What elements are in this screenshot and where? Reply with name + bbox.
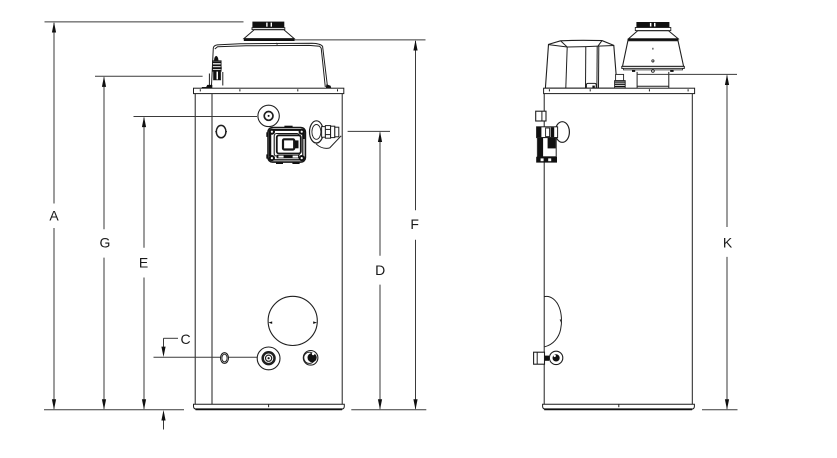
svg-text:D: D <box>375 262 385 278</box>
svg-text:C: C <box>181 331 191 347</box>
svg-text:E: E <box>139 255 148 271</box>
svg-text:F: F <box>410 216 419 232</box>
svg-text:A: A <box>49 207 59 223</box>
svg-text:G: G <box>100 235 111 251</box>
svg-text:K: K <box>723 234 733 250</box>
